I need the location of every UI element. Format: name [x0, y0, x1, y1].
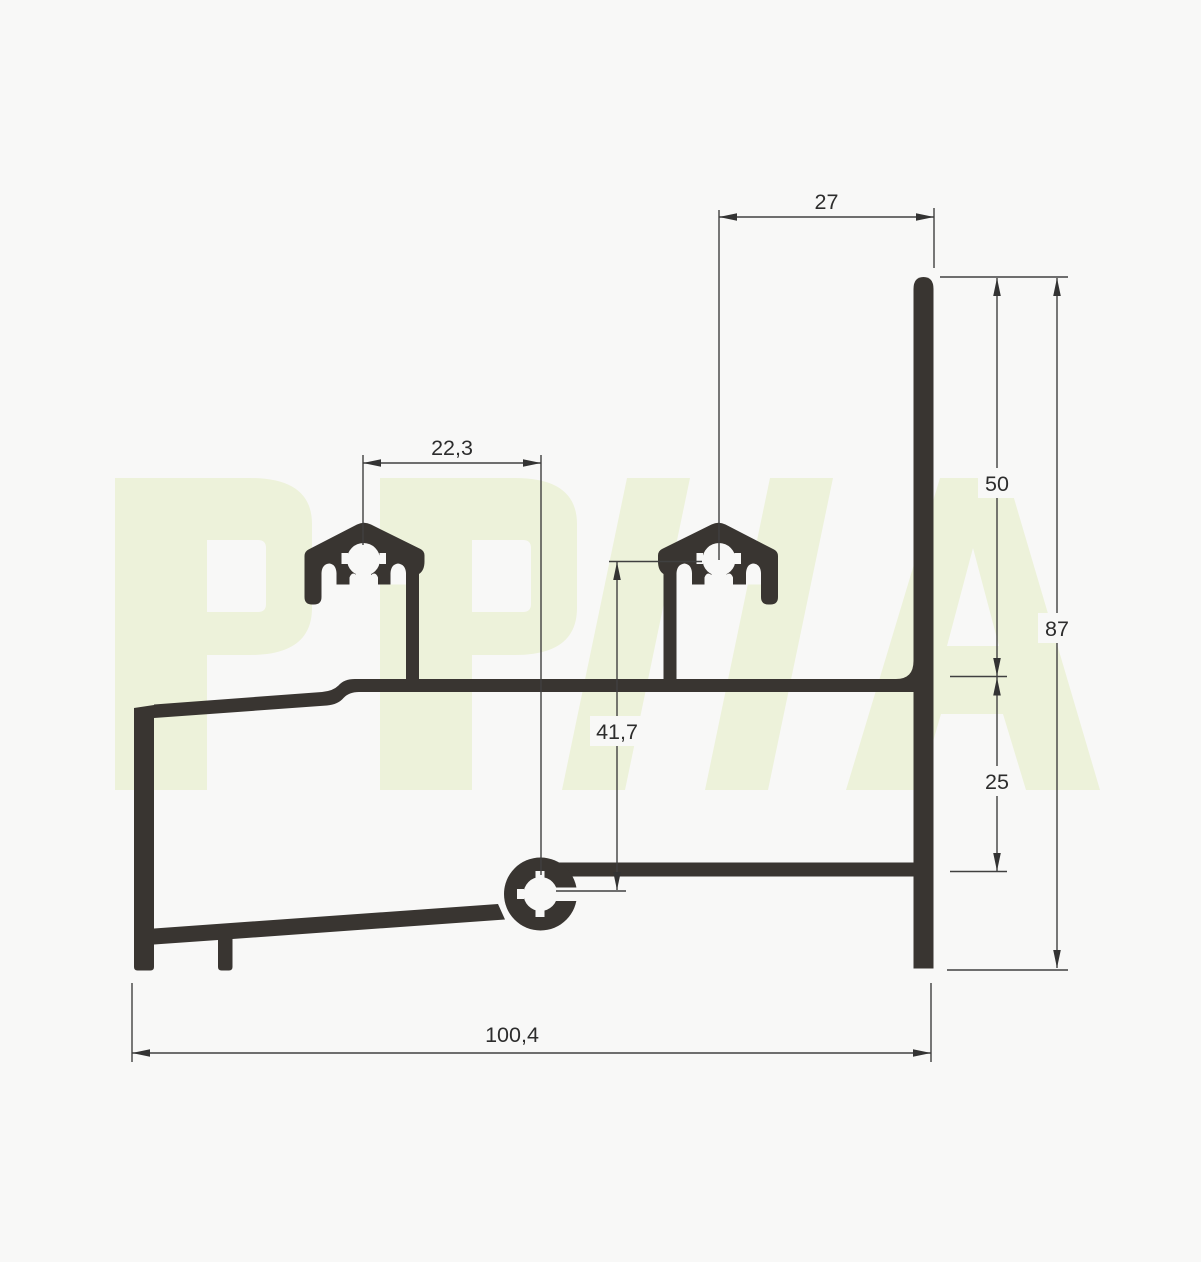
dim-label-25: 25: [985, 770, 1009, 794]
technical-drawing-canvas: 27 22,3 50 87 41,7 25 100,4: [0, 0, 1201, 1262]
profile-drawing-svg: 27 22,3 50 87 41,7 25 100,4: [0, 0, 1201, 1257]
arrow-41-7-bottom: [613, 872, 621, 890]
arrow-100-4-right: [913, 1049, 931, 1057]
profile-right-wall: [914, 277, 934, 969]
dim-label-87: 87: [1045, 617, 1069, 641]
dim-label-50: 50: [985, 472, 1009, 496]
arrow-100-4-left: [132, 1049, 150, 1057]
dim-label-100-4: 100,4: [485, 1023, 539, 1047]
clip-notch-outer-right: [391, 564, 407, 585]
screw-port-notch-bottom: [536, 910, 545, 917]
arrow-27-right: [916, 213, 934, 221]
arrow-22-3-right: [523, 459, 541, 467]
profile-bottom-wall: [154, 904, 505, 971]
profile-lower-web: [528, 863, 914, 877]
profile-main-web: [154, 679, 914, 718]
arrow-50-top: [993, 278, 1001, 296]
screw-port-notch-left: [517, 889, 524, 899]
dim-label-22-3: 22,3: [431, 436, 473, 460]
profile-left-wall: [134, 705, 154, 971]
clip-hole-slot: [712, 571, 727, 586]
clip-rim-notch-left: [735, 553, 742, 564]
screw-port-slot: [540, 888, 578, 902]
clip-notch-outer-left: [746, 564, 761, 585]
clip-rim-notch-right: [697, 553, 704, 564]
dim-label-41-7: 41,7: [596, 720, 638, 744]
clip-hole-slot: [356, 571, 371, 586]
arrow-87-top: [1053, 278, 1061, 296]
clip-notch-outer-left: [322, 564, 337, 585]
dim-label-27: 27: [815, 190, 839, 214]
arrow-22-3-left: [363, 459, 381, 467]
arrow-27-left: [719, 213, 737, 221]
clip-rim-notch-left: [342, 553, 349, 564]
arrow-87-bottom: [1053, 950, 1061, 968]
clip-notch-outer-right: [677, 564, 693, 585]
arrow-25-bottom: [993, 853, 1001, 871]
screw-port-notch-top: [536, 871, 545, 878]
clip-rim-notch-right: [380, 553, 387, 564]
